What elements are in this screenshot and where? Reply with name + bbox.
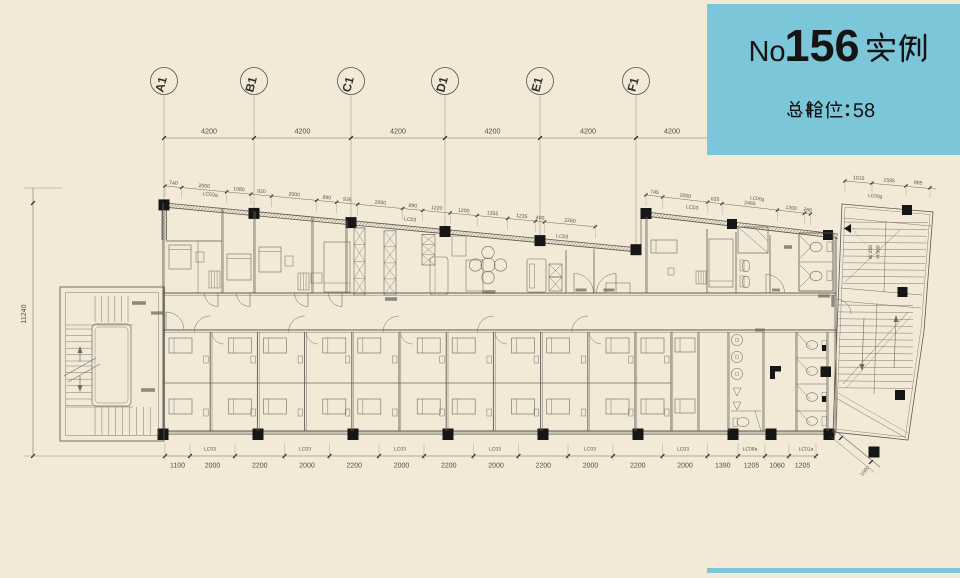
svg-text:745: 745 [650, 189, 659, 196]
svg-text:LC08a: LC08a [743, 447, 758, 453]
svg-text:2200: 2200 [630, 463, 646, 470]
svg-text:890: 890 [322, 195, 331, 202]
svg-text:1220: 1220 [431, 205, 443, 212]
svg-text:1205: 1205 [795, 463, 811, 470]
svg-text:635: 635 [710, 196, 719, 203]
svg-text:4200: 4200 [390, 127, 406, 136]
svg-text:11240: 11240 [21, 304, 28, 323]
svg-text:4200: 4200 [485, 127, 501, 136]
svg-text:LC03: LC03 [404, 216, 417, 223]
svg-text:2200: 2200 [535, 463, 551, 470]
svg-text:LC00g: LC00g [868, 193, 883, 200]
svg-text:2000: 2000 [677, 463, 693, 470]
svg-text:LC03: LC03 [677, 447, 689, 453]
svg-text:LC03: LC03 [489, 447, 501, 453]
svg-text:LC01a: LC01a [799, 447, 814, 453]
svg-text:2200: 2200 [252, 463, 268, 470]
svg-text:920: 920 [257, 189, 266, 196]
svg-text:H:500: H:500 [876, 245, 882, 259]
svg-text:LC03: LC03 [556, 233, 569, 240]
svg-text:1200: 1200 [458, 208, 470, 215]
svg-text:2000: 2000 [583, 463, 599, 470]
svg-text:2260: 2260 [564, 218, 576, 225]
svg-text:2000: 2000 [198, 183, 210, 190]
svg-text:1355: 1355 [486, 210, 498, 217]
svg-text:1205: 1205 [744, 463, 760, 470]
svg-text:1390: 1390 [715, 463, 731, 470]
svg-text:LC03: LC03 [204, 447, 216, 453]
svg-text:2000: 2000 [205, 463, 221, 470]
svg-text:2000: 2000 [488, 463, 504, 470]
svg-text:2000: 2000 [288, 192, 300, 199]
svg-text:4200: 4200 [201, 127, 217, 136]
svg-text:1080: 1080 [233, 186, 245, 193]
svg-text:2200: 2200 [346, 463, 362, 470]
svg-text:1235: 1235 [516, 213, 528, 220]
svg-text:935: 935 [343, 197, 352, 204]
svg-text:2000: 2000 [374, 200, 386, 207]
svg-text:2000: 2000 [394, 463, 410, 470]
svg-text:4200: 4200 [295, 127, 311, 136]
svg-text:1060: 1060 [769, 463, 785, 470]
svg-text:W:200: W:200 [868, 245, 874, 260]
svg-text:4200: 4200 [664, 127, 680, 136]
svg-text:890: 890 [408, 203, 417, 210]
svg-text:4200: 4200 [580, 127, 596, 136]
svg-text:740: 740 [169, 180, 178, 187]
svg-text:No: No [748, 36, 785, 68]
svg-text:1015: 1015 [853, 175, 865, 182]
svg-text:1585: 1585 [883, 178, 895, 185]
svg-text:400: 400 [535, 215, 544, 222]
svg-text:LC03: LC03 [394, 447, 406, 453]
svg-text:LC03: LC03 [299, 447, 311, 453]
svg-text:266: 266 [803, 207, 812, 214]
svg-text:985: 985 [914, 180, 923, 187]
svg-text:2000: 2000 [299, 463, 315, 470]
svg-text:156: 156 [784, 20, 859, 71]
svg-text:2200: 2200 [441, 463, 457, 470]
svg-text:58: 58 [853, 100, 875, 122]
svg-text:LC03: LC03 [584, 447, 596, 453]
svg-text:1100: 1100 [170, 463, 185, 470]
